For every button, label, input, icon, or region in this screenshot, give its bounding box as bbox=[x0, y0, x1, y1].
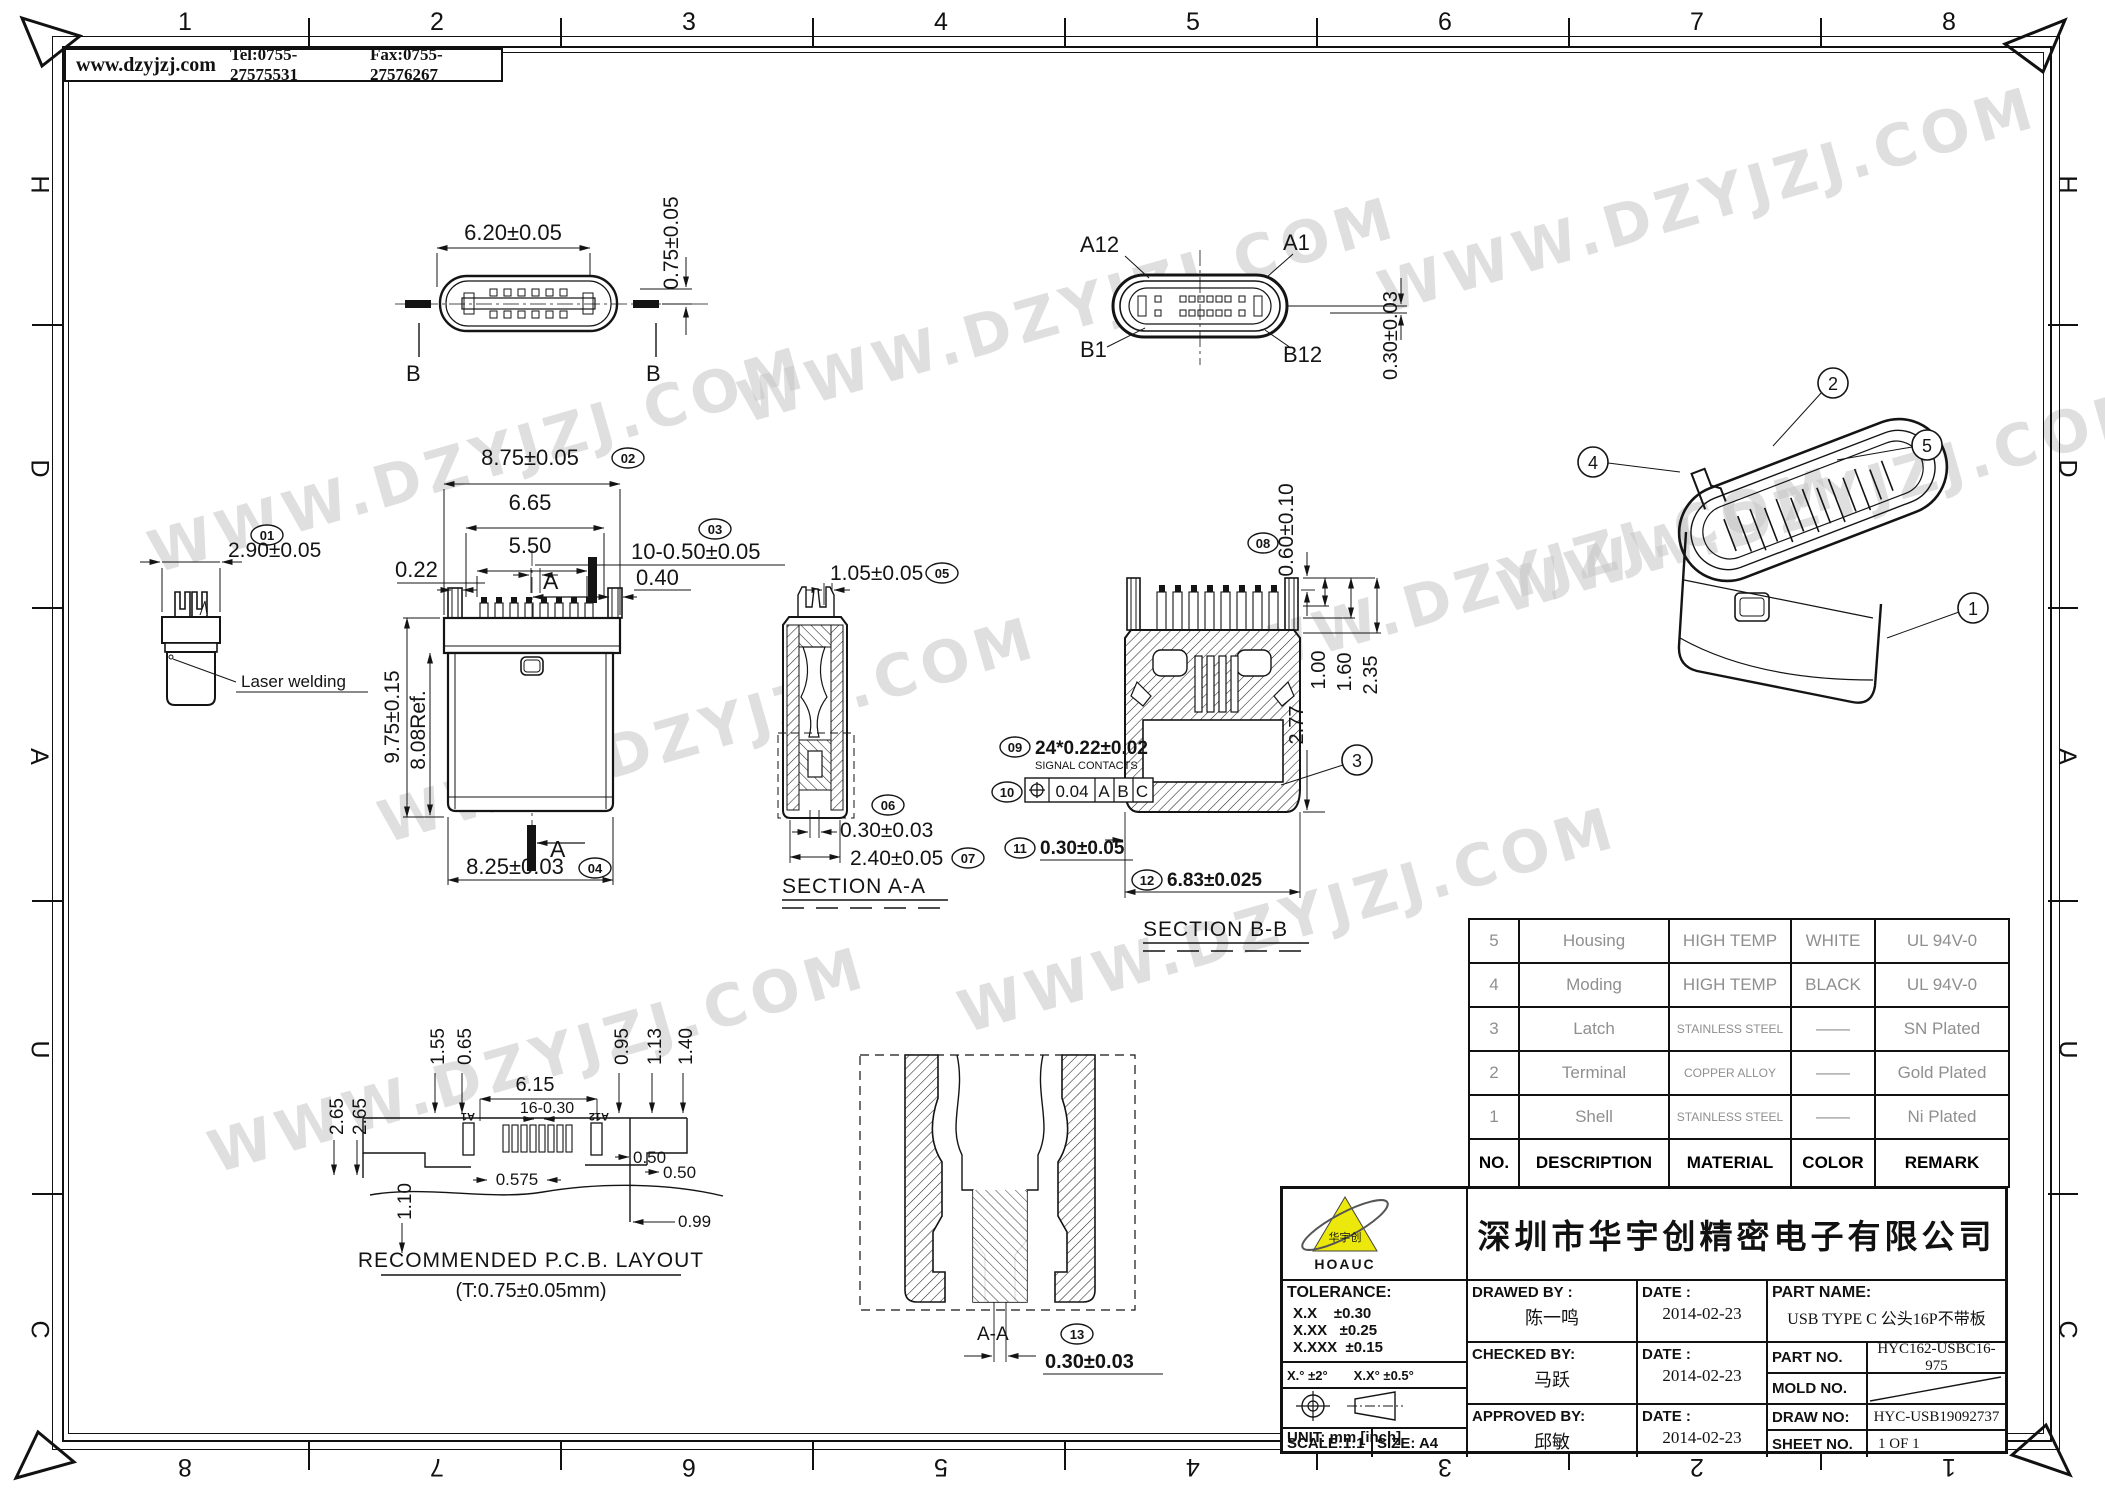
dim-160: 1.60 bbox=[1334, 653, 1356, 692]
table-row: 1 Shell STAINLESS STEEL —— Ni Plated bbox=[1469, 1095, 2009, 1139]
sheet-no-value-cell: 1 OF 1 bbox=[1868, 1431, 2005, 1457]
zone-row: H bbox=[2053, 175, 2082, 193]
section-bb-view: 08 0.60±0.10 1.00 1.60 2.35 2.77 3 09 24… bbox=[985, 420, 1505, 990]
draw-no-label-cell: DRAW NO: bbox=[1768, 1405, 1868, 1431]
part-color: BLACK bbox=[1791, 963, 1875, 1007]
sheet-no-value: 1 OF 1 bbox=[1868, 1436, 1920, 1453]
zone-col: 1 bbox=[178, 8, 192, 37]
iso-balloons: 2 5 4 1 bbox=[1578, 368, 1988, 638]
tolerance-cell: TOLERANCE: X.X ±0.30 X.XX ±0.25 X.XXX ±0… bbox=[1283, 1281, 1468, 1363]
zone-row: U bbox=[2053, 1040, 2082, 1058]
dim-240: 2.40±0.05 bbox=[850, 847, 943, 870]
date-cell-3: DATE : 2014-02-23 bbox=[1638, 1405, 1768, 1457]
part-no: 3 bbox=[1469, 1007, 1519, 1051]
zone-col: 8 bbox=[178, 1452, 192, 1481]
approved-by-label: APPROVED BY: bbox=[1468, 1405, 1636, 1428]
part-no: 2 bbox=[1469, 1051, 1519, 1095]
website-text: www.dzyjzj.com bbox=[76, 54, 216, 77]
detail-aa-label: A-A bbox=[977, 1324, 1009, 1345]
dim-683: 6.83±0.025 bbox=[1167, 870, 1262, 891]
col-header-color: COLOR bbox=[1791, 1139, 1875, 1187]
dim-265a: 2.65 bbox=[327, 1098, 348, 1135]
dim-095: 0.95 bbox=[612, 1028, 633, 1065]
date-value-2: 2014-02-23 bbox=[1638, 1366, 1766, 1386]
part-material: STAINLESS STEEL bbox=[1669, 1007, 1791, 1051]
date-value-1: 2014-02-23 bbox=[1638, 1304, 1766, 1324]
dim-620: 6.20±0.05 bbox=[464, 220, 562, 245]
logo-text: HOAUC bbox=[1314, 1256, 1375, 1272]
front-view: 8.75±0.05 02 6.65 5.50 03 10-0.50±0.05 0… bbox=[385, 425, 830, 945]
zone-col: 2 bbox=[430, 8, 444, 37]
part-no-label-cell: PART NO. bbox=[1768, 1343, 1868, 1374]
zone-row: D bbox=[2053, 459, 2082, 477]
tolerance-3: X.XXX ±0.15 bbox=[1283, 1339, 1466, 1356]
balloon-09: 09 bbox=[1008, 740, 1022, 755]
draw-no-label: DRAW NO: bbox=[1768, 1406, 1854, 1429]
part-no: 1 bbox=[1469, 1095, 1519, 1139]
part-remark: UL 94V-0 bbox=[1875, 963, 2009, 1007]
pin-label-a1: A1 bbox=[1283, 230, 1310, 255]
company-logo: 华宇创 HOAUC bbox=[1283, 1189, 1464, 1277]
dim-030: 0.30±0.03 bbox=[1380, 291, 1402, 380]
draw-no-value-cell: HYC-USB19092737 bbox=[1868, 1405, 2005, 1431]
col-header-no: NO. bbox=[1469, 1139, 1519, 1187]
fcf-datum-a: A bbox=[1098, 782, 1110, 801]
balloon-07: 07 bbox=[961, 851, 975, 866]
balloon-03: 03 bbox=[708, 522, 722, 537]
zone-col: 5 bbox=[934, 1452, 948, 1481]
section-bb-title: SECTION B-B bbox=[1143, 918, 1288, 941]
dim-099: 0.99 bbox=[678, 1212, 711, 1231]
pad-label-a12: A12 bbox=[589, 1110, 609, 1122]
part-desc: Housing bbox=[1519, 919, 1669, 963]
dim-277: 2.77 bbox=[1286, 706, 1308, 745]
detail-aa-view: A-A 13 0.30±0.03 bbox=[845, 1040, 1185, 1400]
side-view: 01 2.90±0.05 Laser welding bbox=[110, 510, 380, 730]
table-header-row: NO. DESCRIPTION MATERIAL COLOR REMARK bbox=[1469, 1139, 2009, 1187]
iso-pins bbox=[1724, 459, 1897, 562]
tel-text: Tel:0755-27575531 bbox=[230, 45, 356, 85]
pin-label-a12: A12 bbox=[1080, 232, 1119, 257]
zone-row: U bbox=[25, 1040, 54, 1058]
sheet-no-label: SHEET NO. bbox=[1768, 1433, 1857, 1456]
angle-tolerance-cell: X.° ±2° X.X° ±0.5° bbox=[1283, 1363, 1468, 1389]
part-name-value: USB TYPE C 公头16P不带板 bbox=[1768, 1305, 2005, 1329]
dim-022: 0.22 bbox=[395, 557, 438, 582]
part-remark: Gold Plated bbox=[1875, 1051, 2009, 1095]
balloon-04: 04 bbox=[588, 861, 603, 876]
dim-030-detail: 0.30±0.03 bbox=[1045, 1351, 1134, 1373]
part-color: —— bbox=[1791, 1095, 1875, 1139]
date-label-3: DATE : bbox=[1638, 1405, 1766, 1428]
logo-mark-text: 华宇创 bbox=[1329, 1230, 1362, 1244]
section-aa-part bbox=[778, 587, 854, 818]
top-view: 6.20±0.05 B B 0.75±0.05 bbox=[390, 195, 720, 395]
part-no-label: PART NO. bbox=[1768, 1346, 1847, 1369]
drawing-sheet: WWW.DZYJZJ.COM WWW.DZYJZJ.COM WWW.DZYJZJ… bbox=[0, 0, 2105, 1488]
signal-contacts-label: SIGNAL CONTACTS bbox=[1035, 760, 1138, 772]
angle-tol-2: X.X° ±0.5° bbox=[1350, 1365, 1418, 1386]
dim-2422: 24*0.22±0.02 bbox=[1035, 738, 1148, 759]
date-cell-2: DATE : 2014-02-23 bbox=[1638, 1343, 1768, 1405]
zone-col: 4 bbox=[1186, 1452, 1200, 1481]
part-remark: SN Plated bbox=[1875, 1007, 2009, 1051]
part-material: STAINLESS STEEL bbox=[1669, 1095, 1791, 1139]
detail-aa-part bbox=[905, 1055, 1095, 1302]
zone-row: H bbox=[25, 175, 54, 193]
side-prongs bbox=[175, 592, 207, 617]
logo-cell: 华宇创 HOAUC bbox=[1283, 1189, 1468, 1281]
balloon-12: 12 bbox=[1140, 873, 1154, 888]
zone-row: D bbox=[25, 459, 54, 477]
zone-col: 7 bbox=[1690, 8, 1704, 37]
scale-cell: SCALE:1:1 bbox=[1283, 1429, 1373, 1457]
dim-105: 1.05±0.05 bbox=[830, 562, 923, 585]
part-remark: Ni Plated bbox=[1875, 1095, 2009, 1139]
dim-100: 1.00 bbox=[1308, 651, 1330, 690]
projection-cell: UNIT: mm [inch] bbox=[1283, 1389, 1468, 1429]
zone-row: C bbox=[25, 1320, 54, 1338]
pin-label-b1: B1 bbox=[1080, 337, 1107, 362]
dim-03005: 0.30±0.05 bbox=[1040, 838, 1125, 859]
zone-row: A bbox=[24, 748, 53, 765]
approved-by-cell: APPROVED BY: 邱敏 bbox=[1468, 1405, 1638, 1457]
zone-row: C bbox=[2053, 1320, 2082, 1338]
col-header-description: DESCRIPTION bbox=[1519, 1139, 1669, 1187]
drawed-by-label: DRAWED BY : bbox=[1468, 1281, 1636, 1304]
checked-by-label: CHECKED BY: bbox=[1468, 1343, 1636, 1366]
balloon-10: 10 bbox=[1000, 785, 1014, 800]
col-header-remark: REMARK bbox=[1875, 1139, 2009, 1187]
dim-040: 0.40 bbox=[636, 565, 679, 590]
part-desc: Terminal bbox=[1519, 1051, 1669, 1095]
col-header-material: MATERIAL bbox=[1669, 1139, 1791, 1187]
dim-110: 1.10 bbox=[395, 1183, 416, 1220]
projection-symbols bbox=[1283, 1389, 1463, 1427]
dim-050b: 0.50 bbox=[663, 1163, 696, 1182]
date-label-2: DATE : bbox=[1638, 1343, 1766, 1366]
dim-0575: 0.575 bbox=[496, 1170, 539, 1189]
header-contact-bar: www.dzyjzj.com Tel:0755-27575531 Fax:075… bbox=[64, 48, 503, 82]
zone-col: 3 bbox=[682, 8, 696, 37]
part-desc: Moding bbox=[1519, 963, 1669, 1007]
balloon-3: 3 bbox=[1352, 751, 1362, 771]
dim-615: 6.15 bbox=[516, 1074, 555, 1096]
zone-row: A bbox=[2052, 748, 2081, 765]
balloon-4: 4 bbox=[1588, 453, 1598, 473]
section-aa-view: 1.05±0.05 05 06 0.30±0.03 2.40± bbox=[770, 555, 1020, 935]
approved-by-value: 邱敏 bbox=[1468, 1428, 1636, 1454]
draw-no-value: HYC-USB19092737 bbox=[1874, 1409, 2000, 1426]
company-name: 深圳市华宇创精密电子有限公司 bbox=[1468, 1189, 2005, 1281]
part-color: WHITE bbox=[1791, 919, 1875, 963]
dim-050a: 0.50 bbox=[633, 1148, 666, 1167]
dim-065: 0.65 bbox=[455, 1028, 476, 1065]
parts-table: 5 Housing HIGH TEMP WHITE UL 94V-0 4 Mod… bbox=[1468, 918, 2010, 1188]
balloon-08: 08 bbox=[1256, 536, 1270, 551]
checked-by-cell: CHECKED BY: 马跃 bbox=[1468, 1343, 1638, 1405]
balloon-13: 13 bbox=[1070, 1327, 1084, 1342]
dim-975: 9.75±0.15 bbox=[381, 670, 404, 763]
mold-no-value-cell bbox=[1868, 1374, 2005, 1405]
part-color: —— bbox=[1791, 1007, 1875, 1051]
balloon-2: 2 bbox=[1828, 374, 1838, 394]
title-block: 华宇创 HOAUC 深圳市华宇创精密电子有限公司 TOLERANCE: X.X … bbox=[1280, 1186, 2008, 1454]
dim-030-aa: 0.30±0.03 bbox=[840, 819, 933, 842]
drawed-by-value: 陈一鸣 bbox=[1468, 1304, 1636, 1330]
part-material: HIGH TEMP bbox=[1669, 919, 1791, 963]
dim-113: 1.13 bbox=[645, 1028, 666, 1065]
table-row: 3 Latch STAINLESS STEEL —— SN Plated bbox=[1469, 1007, 2009, 1051]
part-desc: Latch bbox=[1519, 1007, 1669, 1051]
tolerance-2: X.XX ±0.25 bbox=[1283, 1322, 1466, 1339]
balloon-11: 11 bbox=[1013, 841, 1027, 856]
pad-label-a1: A1 bbox=[461, 1110, 475, 1122]
part-remark: UL 94V-0 bbox=[1875, 919, 2009, 963]
dim-1050: 10-0.50±0.05 bbox=[631, 539, 761, 564]
mold-no-label-cell: MOLD NO. bbox=[1768, 1374, 1868, 1405]
fcf-datum-b: B bbox=[1117, 782, 1128, 801]
angle-tol-1: X.° ±2° bbox=[1283, 1365, 1332, 1386]
sheet-no-label-cell: SHEET NO. bbox=[1768, 1431, 1868, 1457]
part-desc: Shell bbox=[1519, 1095, 1669, 1139]
zone-col: 5 bbox=[1186, 8, 1200, 37]
zone-col: 7 bbox=[430, 1452, 444, 1481]
section-a-top-label: A bbox=[543, 568, 559, 594]
dim-1630: 16-0.30 bbox=[520, 1100, 574, 1117]
balloon-5: 5 bbox=[1922, 436, 1932, 456]
scale-label: SCALE:1:1 bbox=[1283, 1432, 1369, 1455]
dim-808: 8.08Ref. bbox=[407, 690, 430, 769]
part-no: 4 bbox=[1469, 963, 1519, 1007]
mold-no-label: MOLD NO. bbox=[1768, 1377, 1851, 1400]
balloon-1: 1 bbox=[1968, 599, 1978, 619]
part-no-value-cell: HYC162-USBC16-975 bbox=[1868, 1343, 2005, 1374]
iso-view: 2 5 4 1 bbox=[1575, 350, 2025, 695]
dim-825: 8.25±0.03 bbox=[466, 854, 564, 879]
date-value-3: 2014-02-23 bbox=[1638, 1428, 1766, 1448]
laser-welding-note: Laser welding bbox=[241, 672, 346, 691]
size-label: SIZE: A4 bbox=[1373, 1432, 1442, 1455]
part-name-cell: PART NAME: USB TYPE C 公头16P不带板 bbox=[1768, 1281, 2005, 1343]
pcb-title: RECOMMENDED P.C.B. LAYOUT bbox=[358, 1249, 704, 1272]
pcb-subtitle: (T:0.75±0.05mm) bbox=[455, 1280, 606, 1302]
part-material: COPPER ALLOY bbox=[1669, 1051, 1791, 1095]
table-row: 4 Moding HIGH TEMP BLACK UL 94V-0 bbox=[1469, 963, 2009, 1007]
pcb-layout-view: 1.55 0.65 0.95 1.13 1.40 6.15 16-0.30 bbox=[275, 1035, 775, 1355]
tolerance-title: TOLERANCE: bbox=[1283, 1281, 1466, 1305]
table-row: 2 Terminal COPPER ALLOY —— Gold Plated bbox=[1469, 1051, 2009, 1095]
date-cell-1: DATE : 2014-02-23 bbox=[1638, 1281, 1768, 1343]
dim-550: 5.50 bbox=[509, 533, 552, 558]
dim-140: 1.40 bbox=[676, 1028, 697, 1065]
zone-col: 6 bbox=[682, 1452, 696, 1481]
part-material: HIGH TEMP bbox=[1669, 963, 1791, 1007]
dim-155: 1.55 bbox=[428, 1028, 449, 1065]
section-bb-part bbox=[1125, 578, 1300, 812]
size-cell: SIZE: A4 bbox=[1373, 1429, 1468, 1457]
cut-label-b-right: B bbox=[646, 361, 661, 386]
part-no-value: HYC162-USBC16-975 bbox=[1868, 1341, 2005, 1375]
part-no: 5 bbox=[1469, 919, 1519, 963]
fcf-tolerance: 0.04 bbox=[1055, 782, 1088, 801]
dim-665: 6.65 bbox=[509, 490, 552, 515]
tolerance-1: X.X ±0.30 bbox=[1283, 1305, 1466, 1322]
zone-col: 8 bbox=[1942, 8, 1956, 37]
dim-265b: 2.65 bbox=[350, 1098, 371, 1135]
dim-075: 0.75±0.05 bbox=[660, 196, 683, 289]
cut-label-b-left: B bbox=[406, 361, 421, 386]
section-aa-title: SECTION A-A bbox=[782, 875, 926, 898]
drawed-by-cell: DRAWED BY : 陈一鸣 bbox=[1468, 1281, 1638, 1343]
balloon-02: 02 bbox=[621, 451, 635, 466]
dim-290: 2.90±0.05 bbox=[228, 539, 321, 562]
balloon-06: 06 bbox=[881, 798, 895, 813]
fax-text: Fax:0755-27576267 bbox=[370, 45, 501, 85]
date-label-1: DATE : bbox=[1638, 1281, 1766, 1304]
dim-875: 8.75±0.05 bbox=[481, 445, 579, 470]
zone-col: 6 bbox=[1438, 8, 1452, 37]
pin-label-b12: B12 bbox=[1283, 342, 1322, 367]
dim-235: 2.35 bbox=[1360, 656, 1382, 695]
dim-060: 0.60±0.10 bbox=[1275, 483, 1298, 576]
balloon-05: 05 bbox=[935, 566, 949, 581]
feature-control-frame: 0.04 A B C bbox=[1025, 778, 1153, 802]
part-name-label: PART NAME: bbox=[1768, 1281, 2005, 1305]
part-color: —— bbox=[1791, 1051, 1875, 1095]
table-row: 5 Housing HIGH TEMP WHITE UL 94V-0 bbox=[1469, 919, 2009, 963]
fcf-datum-c: C bbox=[1136, 782, 1148, 801]
pcb-pads bbox=[463, 1123, 602, 1155]
face-view: A12 A1 B1 B12 0.30±0.03 bbox=[1075, 220, 1420, 395]
zone-col: 4 bbox=[934, 8, 948, 37]
checked-by-value: 马跃 bbox=[1468, 1366, 1636, 1392]
